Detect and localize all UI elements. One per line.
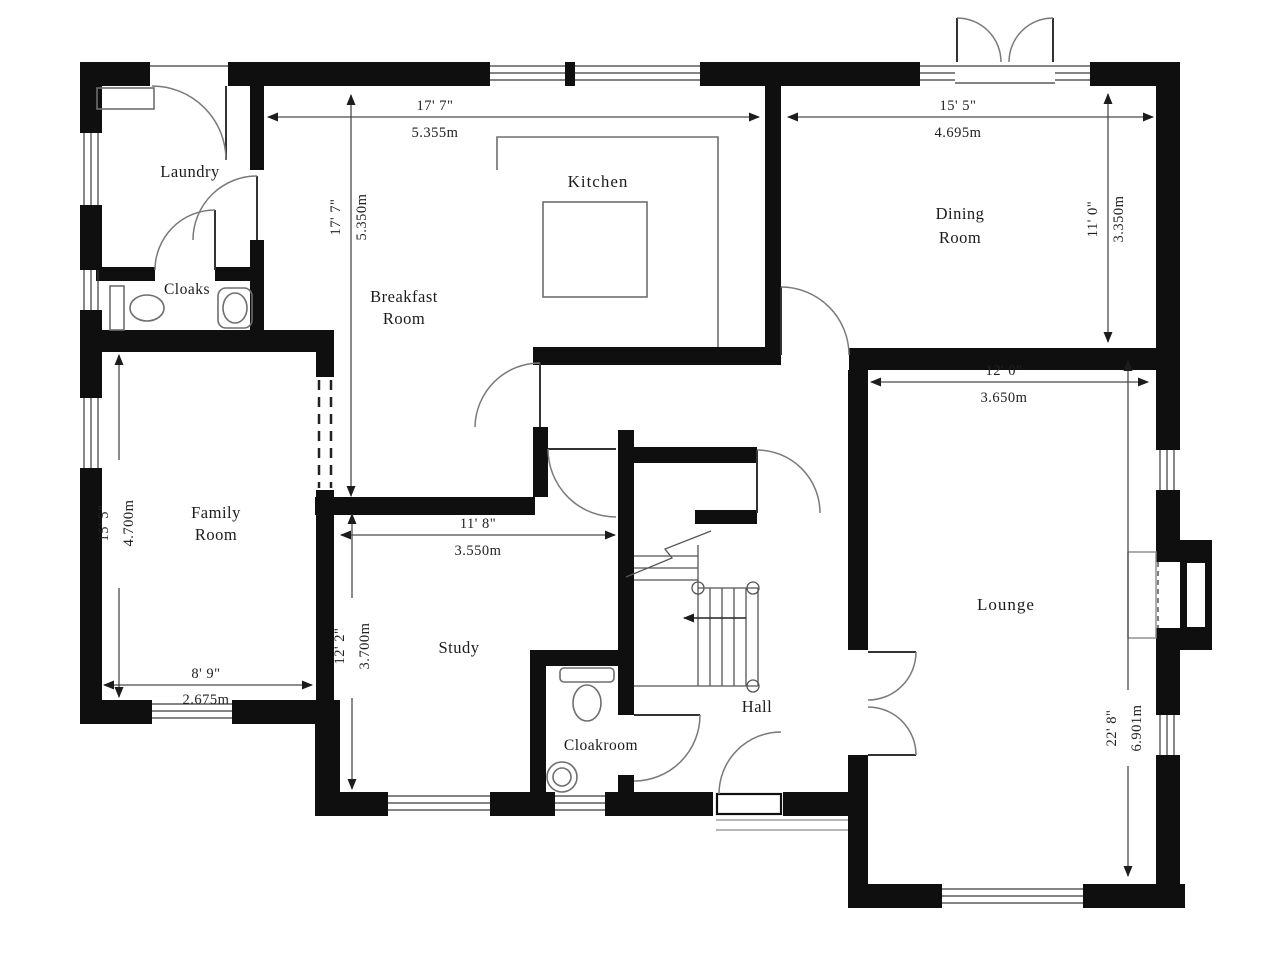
room-label-hall: Hall: [742, 697, 772, 716]
svg-text:Room: Room: [383, 309, 425, 328]
svg-text:15' 5": 15' 5": [96, 505, 112, 542]
svg-text:Family: Family: [191, 503, 241, 522]
svg-text:12' 2": 12' 2": [332, 628, 348, 665]
svg-text:5.355m: 5.355m: [412, 125, 459, 141]
svg-text:3.700m: 3.700m: [357, 622, 373, 669]
room-label-study: Study: [438, 638, 479, 657]
svg-text:3.350m: 3.350m: [1111, 195, 1127, 242]
svg-text:Dining: Dining: [936, 204, 985, 223]
svg-text:6.901m: 6.901m: [1129, 704, 1145, 751]
svg-text:17' 7": 17' 7": [328, 199, 344, 236]
svg-text:8' 9": 8' 9": [191, 666, 220, 682]
room-label-cloakroom: Cloakroom: [564, 737, 638, 754]
svg-text:17' 7": 17' 7": [417, 98, 454, 114]
svg-text:Breakfast: Breakfast: [370, 287, 438, 306]
svg-text:2.675m: 2.675m: [183, 692, 230, 708]
room-label-kitchen: Kitchen: [568, 172, 629, 191]
svg-text:22' 8": 22' 8": [1104, 710, 1120, 747]
room-label-lounge: Lounge: [977, 595, 1035, 614]
floor-plan-drawing: 17' 7" 5.355m 17' 7" 5.350m 15' 5" 4.695…: [0, 0, 1280, 960]
svg-text:15' 5": 15' 5": [940, 98, 977, 114]
svg-text:4.695m: 4.695m: [935, 125, 982, 141]
svg-text:4.700m: 4.700m: [121, 499, 137, 546]
svg-text:12' 0": 12' 0": [986, 363, 1023, 379]
floor-plan-page: 17' 7" 5.355m 17' 7" 5.350m 15' 5" 4.695…: [0, 0, 1280, 960]
room-label-cloaks: Cloaks: [164, 281, 210, 298]
svg-text:5.350m: 5.350m: [354, 193, 370, 240]
svg-text:3.650m: 3.650m: [981, 390, 1028, 406]
svg-text:3.550m: 3.550m: [455, 543, 502, 559]
svg-text:11' 0": 11' 0": [1085, 201, 1101, 237]
room-label-laundry: Laundry: [160, 162, 220, 181]
svg-text:Room: Room: [195, 525, 237, 544]
svg-text:Room: Room: [939, 228, 981, 247]
svg-text:11' 8": 11' 8": [460, 516, 496, 532]
